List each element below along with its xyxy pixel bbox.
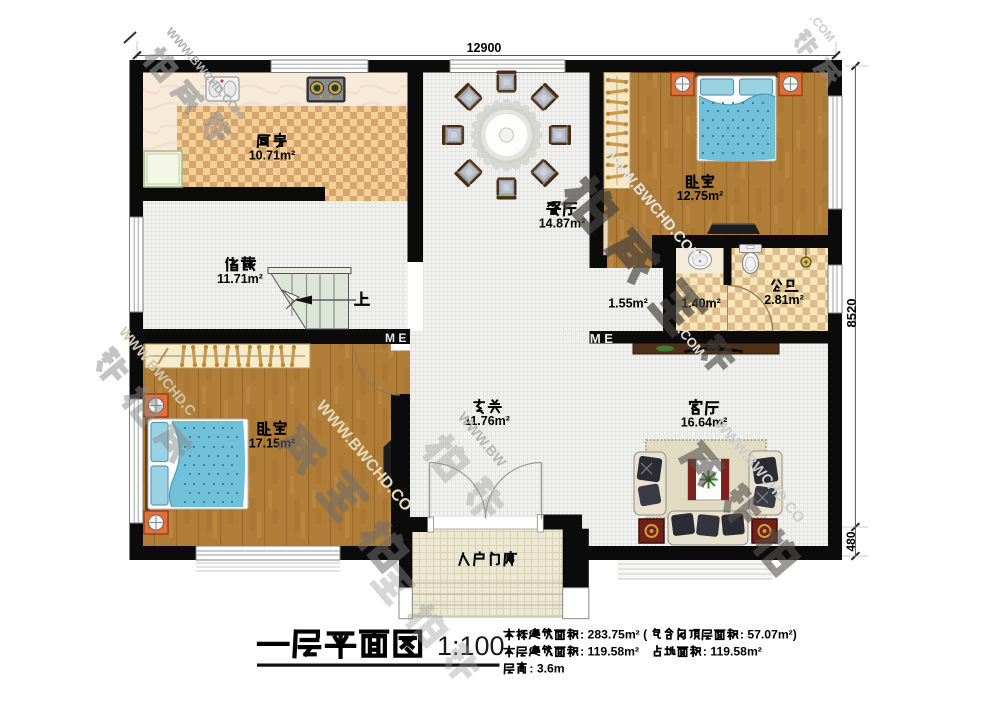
svg-text:: 3.6m: : 3.6m (529, 662, 564, 676)
svg-text:1.55m²: 1.55m² (608, 297, 648, 311)
svg-text:11.71m²: 11.71m² (217, 272, 263, 286)
svg-text:: 57.07m²): : 57.07m²) (740, 628, 797, 642)
svg-text:480: 480 (844, 531, 858, 551)
svg-text:M E: M E (385, 331, 406, 345)
svg-text:H 0 M E: H 0 M E (566, 331, 613, 346)
svg-text:: 119.58m²: : 119.58m² (703, 645, 762, 659)
svg-text:: 283.75m² (: : 283.75m² ( (580, 628, 648, 642)
svg-text:12.75m²: 12.75m² (677, 189, 724, 203)
svg-text:2.81m²: 2.81m² (764, 293, 804, 307)
svg-text:: 119.58m²: : 119.58m² (580, 645, 639, 659)
svg-text:10.71m²: 10.71m² (249, 148, 296, 162)
svg-text:8520: 8520 (844, 299, 859, 328)
svg-text:12900: 12900 (467, 41, 502, 55)
